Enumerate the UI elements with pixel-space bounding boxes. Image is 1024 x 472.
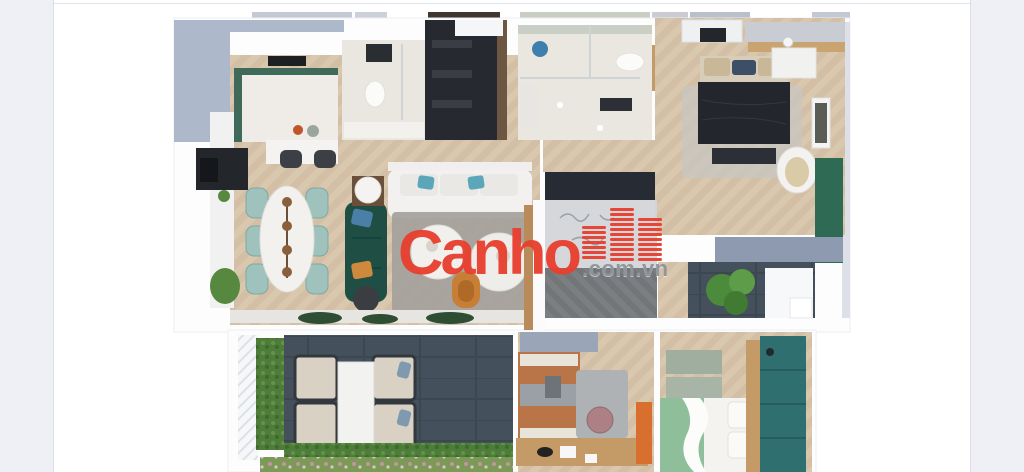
room-bathroom-2: [518, 25, 652, 140]
tv-console: [545, 172, 655, 200]
room-master-bedroom: [655, 18, 845, 263]
top-cropped-strip: [252, 12, 850, 18]
terrace-table: [338, 362, 374, 444]
orange-cabinet: [636, 402, 652, 464]
room-bedroom-3: [660, 332, 812, 472]
toilet: [365, 81, 385, 107]
tv-panel: [700, 28, 726, 42]
plate: [307, 125, 319, 137]
teal-wardrobe: [760, 336, 806, 472]
kitchen-hood: [268, 56, 306, 66]
kids-desk: [516, 438, 648, 466]
plant-large: [210, 268, 240, 304]
plant-small: [218, 190, 230, 202]
closet-top: [745, 22, 845, 42]
bed-3: [660, 398, 752, 472]
room-wardrobe: [425, 20, 507, 140]
toilet: [616, 53, 644, 71]
watermark-brand: Canho: [398, 228, 579, 280]
bar-stool: [314, 150, 336, 168]
kitchen-island: [234, 68, 338, 142]
laundry-sink: [366, 44, 392, 62]
watermark-suffix: .com.vn: [582, 258, 669, 280]
fruit-bowl: [293, 125, 303, 135]
room-kids: [516, 332, 654, 472]
mat: [666, 350, 722, 374]
hallway-floor: [543, 140, 657, 172]
watermark: Canho: [398, 206, 669, 280]
wall-panel: [520, 332, 598, 352]
bath-mat-dark: [600, 98, 632, 111]
stool-dark: [353, 286, 379, 312]
bath-cabinet: [520, 84, 538, 128]
flower-bed: [260, 457, 513, 472]
page: Canho: [0, 0, 1024, 472]
pergola-slats: [238, 335, 258, 460]
buildings-icon: [582, 206, 664, 262]
window-planter: [230, 310, 540, 324]
cooktop: [200, 158, 218, 182]
room-bathroom-1: [342, 40, 426, 140]
bed-bench: [712, 148, 776, 164]
balcony-wall-band: [715, 237, 843, 262]
mauve-chair: [587, 407, 613, 433]
mat: [666, 377, 722, 398]
daybed: [518, 352, 580, 444]
console-shelf: [388, 162, 532, 171]
shower-drain-mat: [532, 41, 548, 57]
dining-set: [246, 186, 328, 294]
hedge-left: [256, 338, 284, 450]
desk-master: [772, 48, 816, 78]
desk-lamp: [783, 37, 793, 47]
vanity: [344, 122, 424, 138]
bar-stool: [280, 150, 302, 168]
hedge-bottom: [284, 443, 513, 458]
